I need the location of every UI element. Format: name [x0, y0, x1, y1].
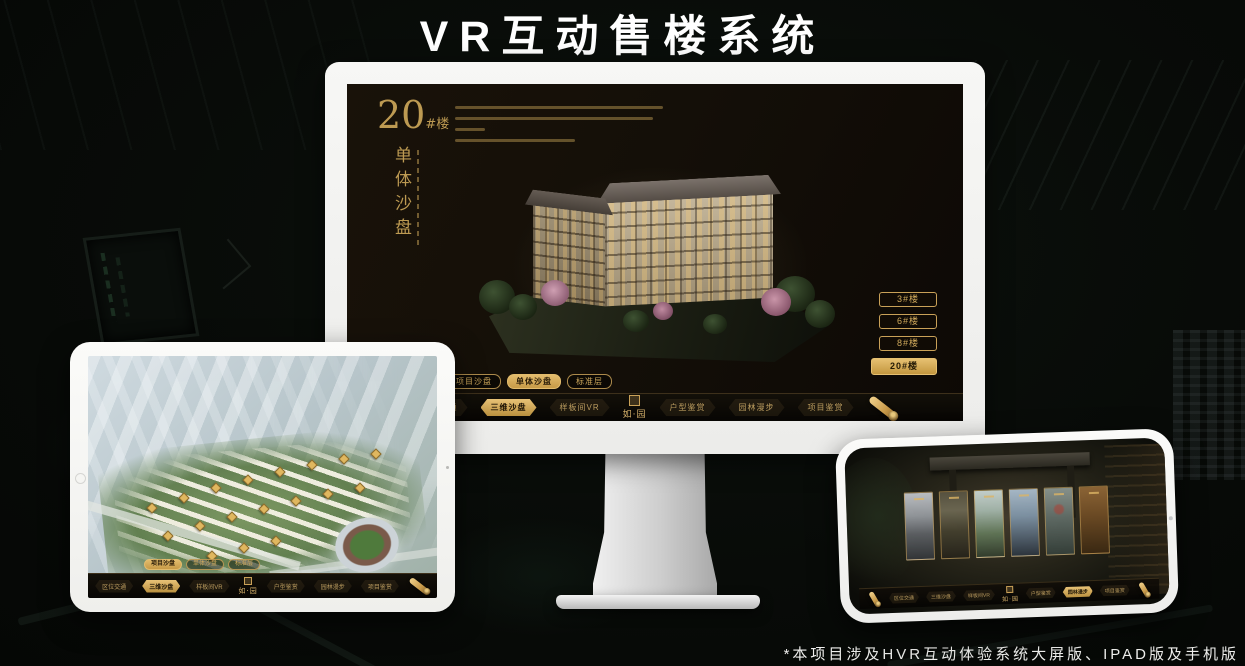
building-button-8[interactable]: 8#楼: [879, 336, 937, 351]
tab-project-sandbox[interactable]: 项目沙盘: [144, 559, 182, 570]
gallery-card[interactable]: [1079, 485, 1110, 554]
nav-item-garden-walk[interactable]: 园林漫步: [314, 580, 352, 593]
footnote: *本项目涉及HVR互动体验系统大屏版、IPAD版及手机版: [784, 643, 1239, 664]
background-buildings: [1173, 330, 1245, 480]
tab-standard-floor[interactable]: 标准层: [228, 559, 260, 570]
nav-item-3d-sandbox[interactable]: 三维沙盘: [926, 590, 956, 602]
building-button-6[interactable]: 6#楼: [879, 314, 937, 329]
tablet-navbar: 区位交通 三维沙盘 样板间VR 如·园 户型鉴赏 园林漫步 项目鉴赏: [88, 573, 437, 598]
subtitle-divider: [417, 150, 419, 246]
tree: [623, 310, 649, 332]
nav-item-floorplans[interactable]: 户型鉴赏: [1026, 587, 1056, 599]
nav-item-garden-walk[interactable]: 园林漫步: [729, 399, 785, 416]
tablet-device: 项目沙盘 单体沙盘 标准层 区位交通 三维沙盘 样板间VR 如·园 户型鉴赏 园…: [70, 342, 455, 612]
tree: [703, 314, 727, 334]
nav-item-project-gallery[interactable]: 项目鉴赏: [798, 399, 854, 416]
tab-project-sandbox[interactable]: 项目沙盘: [447, 374, 501, 389]
nav-item-showroom-vr[interactable]: 样板间VR: [550, 399, 610, 416]
building-front-facade: [605, 190, 773, 307]
background-signboard: [83, 228, 200, 347]
nav-item-project-gallery[interactable]: 项目鉴赏: [361, 580, 399, 593]
description-text-blurred: [455, 106, 670, 150]
building-selector: 3#楼 6#楼 8#楼 20#楼: [871, 292, 937, 375]
block-subtitle: 单体沙盘: [389, 146, 414, 266]
scene-gate-beam: [930, 452, 1090, 471]
nav-item-showroom-vr[interactable]: 样板间VR: [189, 580, 229, 593]
block-number-suffix: #楼: [425, 117, 449, 132]
brand-logo: 如·园: [1002, 585, 1020, 603]
nav-item-floorplans[interactable]: 户型鉴赏: [660, 399, 716, 416]
gallery-card[interactable]: [974, 489, 1005, 558]
monitor-stand-base: [556, 595, 760, 609]
scene-wall: [1104, 443, 1170, 595]
nav-item-floorplans[interactable]: 户型鉴赏: [267, 580, 305, 593]
background-bridge-lines: [975, 60, 1245, 210]
phone-screen: 区位交通 三维沙盘 样板间VR 如·园 户型鉴赏 园林漫步 项目鉴赏: [844, 437, 1170, 614]
scroll-icon[interactable]: [408, 577, 429, 595]
flowering-tree: [761, 288, 791, 316]
background-arrow-mark: [201, 239, 252, 290]
nav-item-location[interactable]: 区位交通: [95, 580, 133, 593]
gallery-card[interactable]: [939, 490, 970, 559]
brand-logo-text: 如·园: [623, 407, 647, 420]
phone-navbar: 区位交通 三维沙盘 样板间VR 如·园 户型鉴赏 园林漫步 项目鉴赏: [859, 578, 1160, 609]
home-button-icon[interactable]: [75, 473, 86, 484]
scroll-icon[interactable]: [867, 394, 897, 420]
tab-standard-floor[interactable]: 标准层: [567, 374, 612, 389]
camera-icon: [1169, 516, 1173, 520]
flowering-tree: [653, 302, 673, 320]
seal-icon: [244, 577, 252, 585]
brand-logo-text: 如·园: [239, 586, 258, 596]
tree: [805, 300, 835, 328]
building-3d-render[interactable]: [475, 162, 845, 377]
tab-single-sandbox[interactable]: 单体沙盘: [186, 559, 224, 570]
scroll-icon[interactable]: [1139, 581, 1151, 597]
tree: [509, 294, 537, 320]
nav-item-project-gallery[interactable]: 项目鉴赏: [1100, 584, 1130, 596]
monitor-stand-neck: [593, 452, 717, 598]
nav-item-3d-sandbox[interactable]: 三维沙盘: [481, 399, 537, 416]
view-tabs: 项目沙盘 单体沙盘 标准层: [447, 374, 612, 389]
phone-device: 区位交通 三维沙盘 样板间VR 如·园 户型鉴赏 园林漫步 项目鉴赏: [835, 428, 1179, 624]
camera-icon: [446, 466, 449, 469]
seal-icon: [629, 395, 640, 406]
poster: VR互动售楼系统 20#楼 单体沙盘: [0, 0, 1245, 666]
tablet-view-tabs: 项目沙盘 单体沙盘 标准层: [144, 559, 260, 570]
nav-item-location[interactable]: 区位交通: [889, 592, 919, 604]
block-number: 20: [377, 93, 425, 137]
gallery-card[interactable]: [904, 492, 935, 561]
nav-item-garden-walk[interactable]: 园林漫步: [1063, 586, 1093, 598]
brand-logo: 如·园: [239, 577, 258, 596]
brand-logo: 如·园: [623, 395, 647, 420]
seal-icon: [1007, 585, 1014, 592]
page-title: VR互动售楼系统: [0, 2, 1245, 64]
gallery-card[interactable]: [1044, 487, 1075, 556]
brand-logo-text: 如·园: [1002, 593, 1019, 603]
tab-single-sandbox[interactable]: 单体沙盘: [507, 374, 561, 389]
gallery-card[interactable]: [1009, 488, 1040, 557]
scroll-icon[interactable]: [868, 591, 880, 607]
flowering-tree: [541, 280, 569, 306]
building-button-20[interactable]: 20#楼: [871, 358, 937, 375]
scene-gallery: [904, 485, 1110, 560]
tablet-screen: 项目沙盘 单体沙盘 标准层 区位交通 三维沙盘 样板间VR 如·园 户型鉴赏 园…: [88, 356, 437, 598]
building-button-3[interactable]: 3#楼: [879, 292, 937, 307]
block-heading: 20#楼: [377, 96, 449, 134]
nav-item-3d-sandbox[interactable]: 三维沙盘: [142, 580, 180, 593]
nav-item-showroom-vr[interactable]: 样板间VR: [963, 589, 995, 601]
